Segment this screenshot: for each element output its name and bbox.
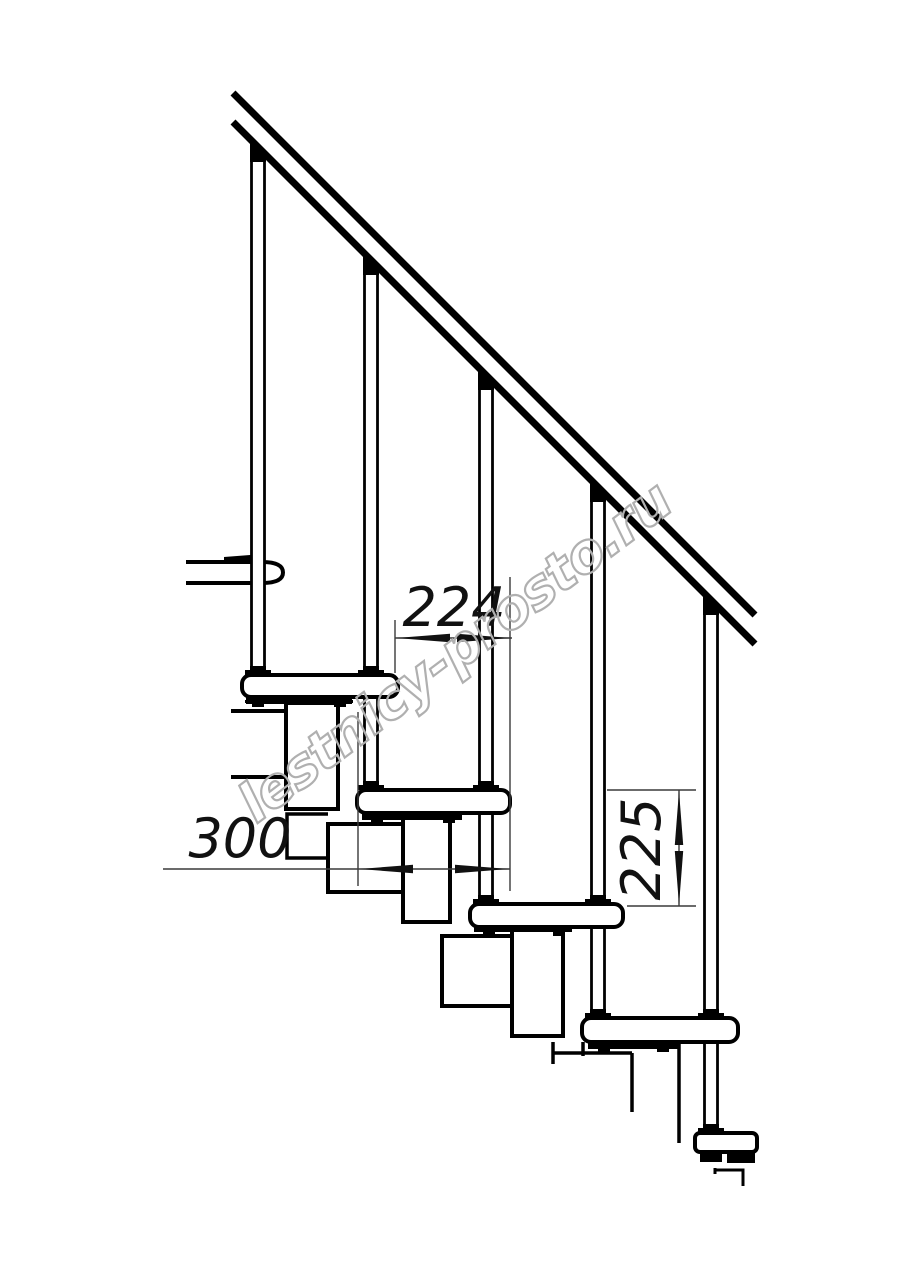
baluster	[365, 273, 378, 675]
handrail-lower-line	[233, 122, 755, 644]
tread	[582, 1018, 738, 1042]
support-module	[328, 824, 406, 892]
wall-stub-bracket	[287, 814, 328, 858]
support-module	[442, 936, 518, 1006]
baluster-segment	[705, 1040, 718, 1131]
dimension-label-rise: 225	[610, 797, 673, 900]
dimension-rise-225: 225	[607, 790, 696, 906]
handrail-upper-line	[233, 93, 755, 615]
tread	[470, 904, 623, 927]
watermark-text: lestnicy-prosto.ru	[226, 469, 683, 835]
support-module	[512, 930, 563, 1036]
tread	[357, 790, 510, 813]
handrail-end-bracket	[186, 554, 283, 583]
baluster-segment	[592, 926, 605, 1018]
bottom-plate	[695, 1133, 757, 1152]
staircase-drawing: 224 300 225 lestnicy-prosto.ru	[0, 0, 914, 1280]
handrail	[233, 93, 755, 644]
dim-arrowhead	[675, 791, 683, 845]
module-cut-lines	[553, 1042, 679, 1143]
dim-arrowhead	[675, 851, 683, 905]
baluster	[705, 613, 718, 1018]
staircase-drawing-canvas: 224 300 225 lestnicy-prosto.ru	[0, 0, 914, 1280]
bottom-cut-line	[715, 1168, 743, 1186]
baluster-segment	[480, 813, 493, 904]
baluster	[252, 160, 265, 675]
